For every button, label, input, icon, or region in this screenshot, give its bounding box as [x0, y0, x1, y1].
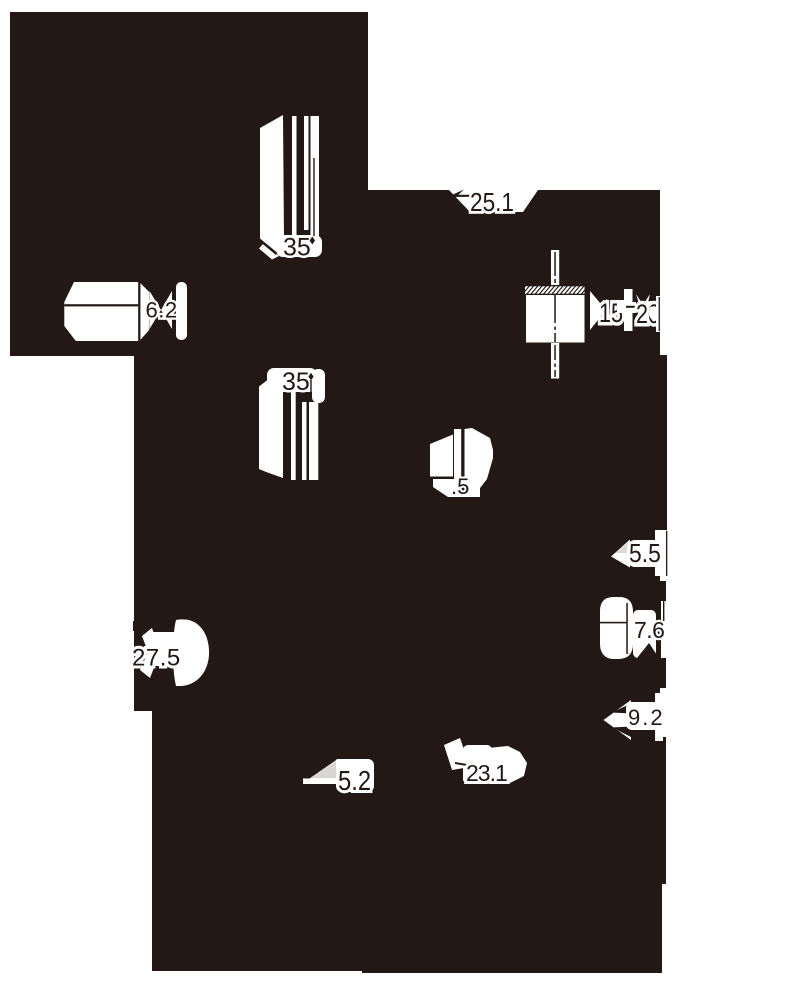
- svg-text:27.5: 27.5: [132, 645, 181, 672]
- svg-text:25.1: 25.1: [470, 189, 514, 218]
- svg-text:6.2: 6.2: [146, 298, 178, 323]
- svg-text:.5: .5: [451, 474, 469, 499]
- svg-text:7.6: 7.6: [634, 617, 664, 643]
- svg-text:35: 35: [283, 234, 311, 262]
- svg-text:35: 35: [282, 368, 310, 396]
- svg-text:23.1: 23.1: [466, 760, 507, 786]
- svg-text:5.2: 5.2: [338, 764, 371, 796]
- svg-text:5.5: 5.5: [629, 540, 661, 569]
- svg-text:9.2: 9.2: [628, 705, 665, 730]
